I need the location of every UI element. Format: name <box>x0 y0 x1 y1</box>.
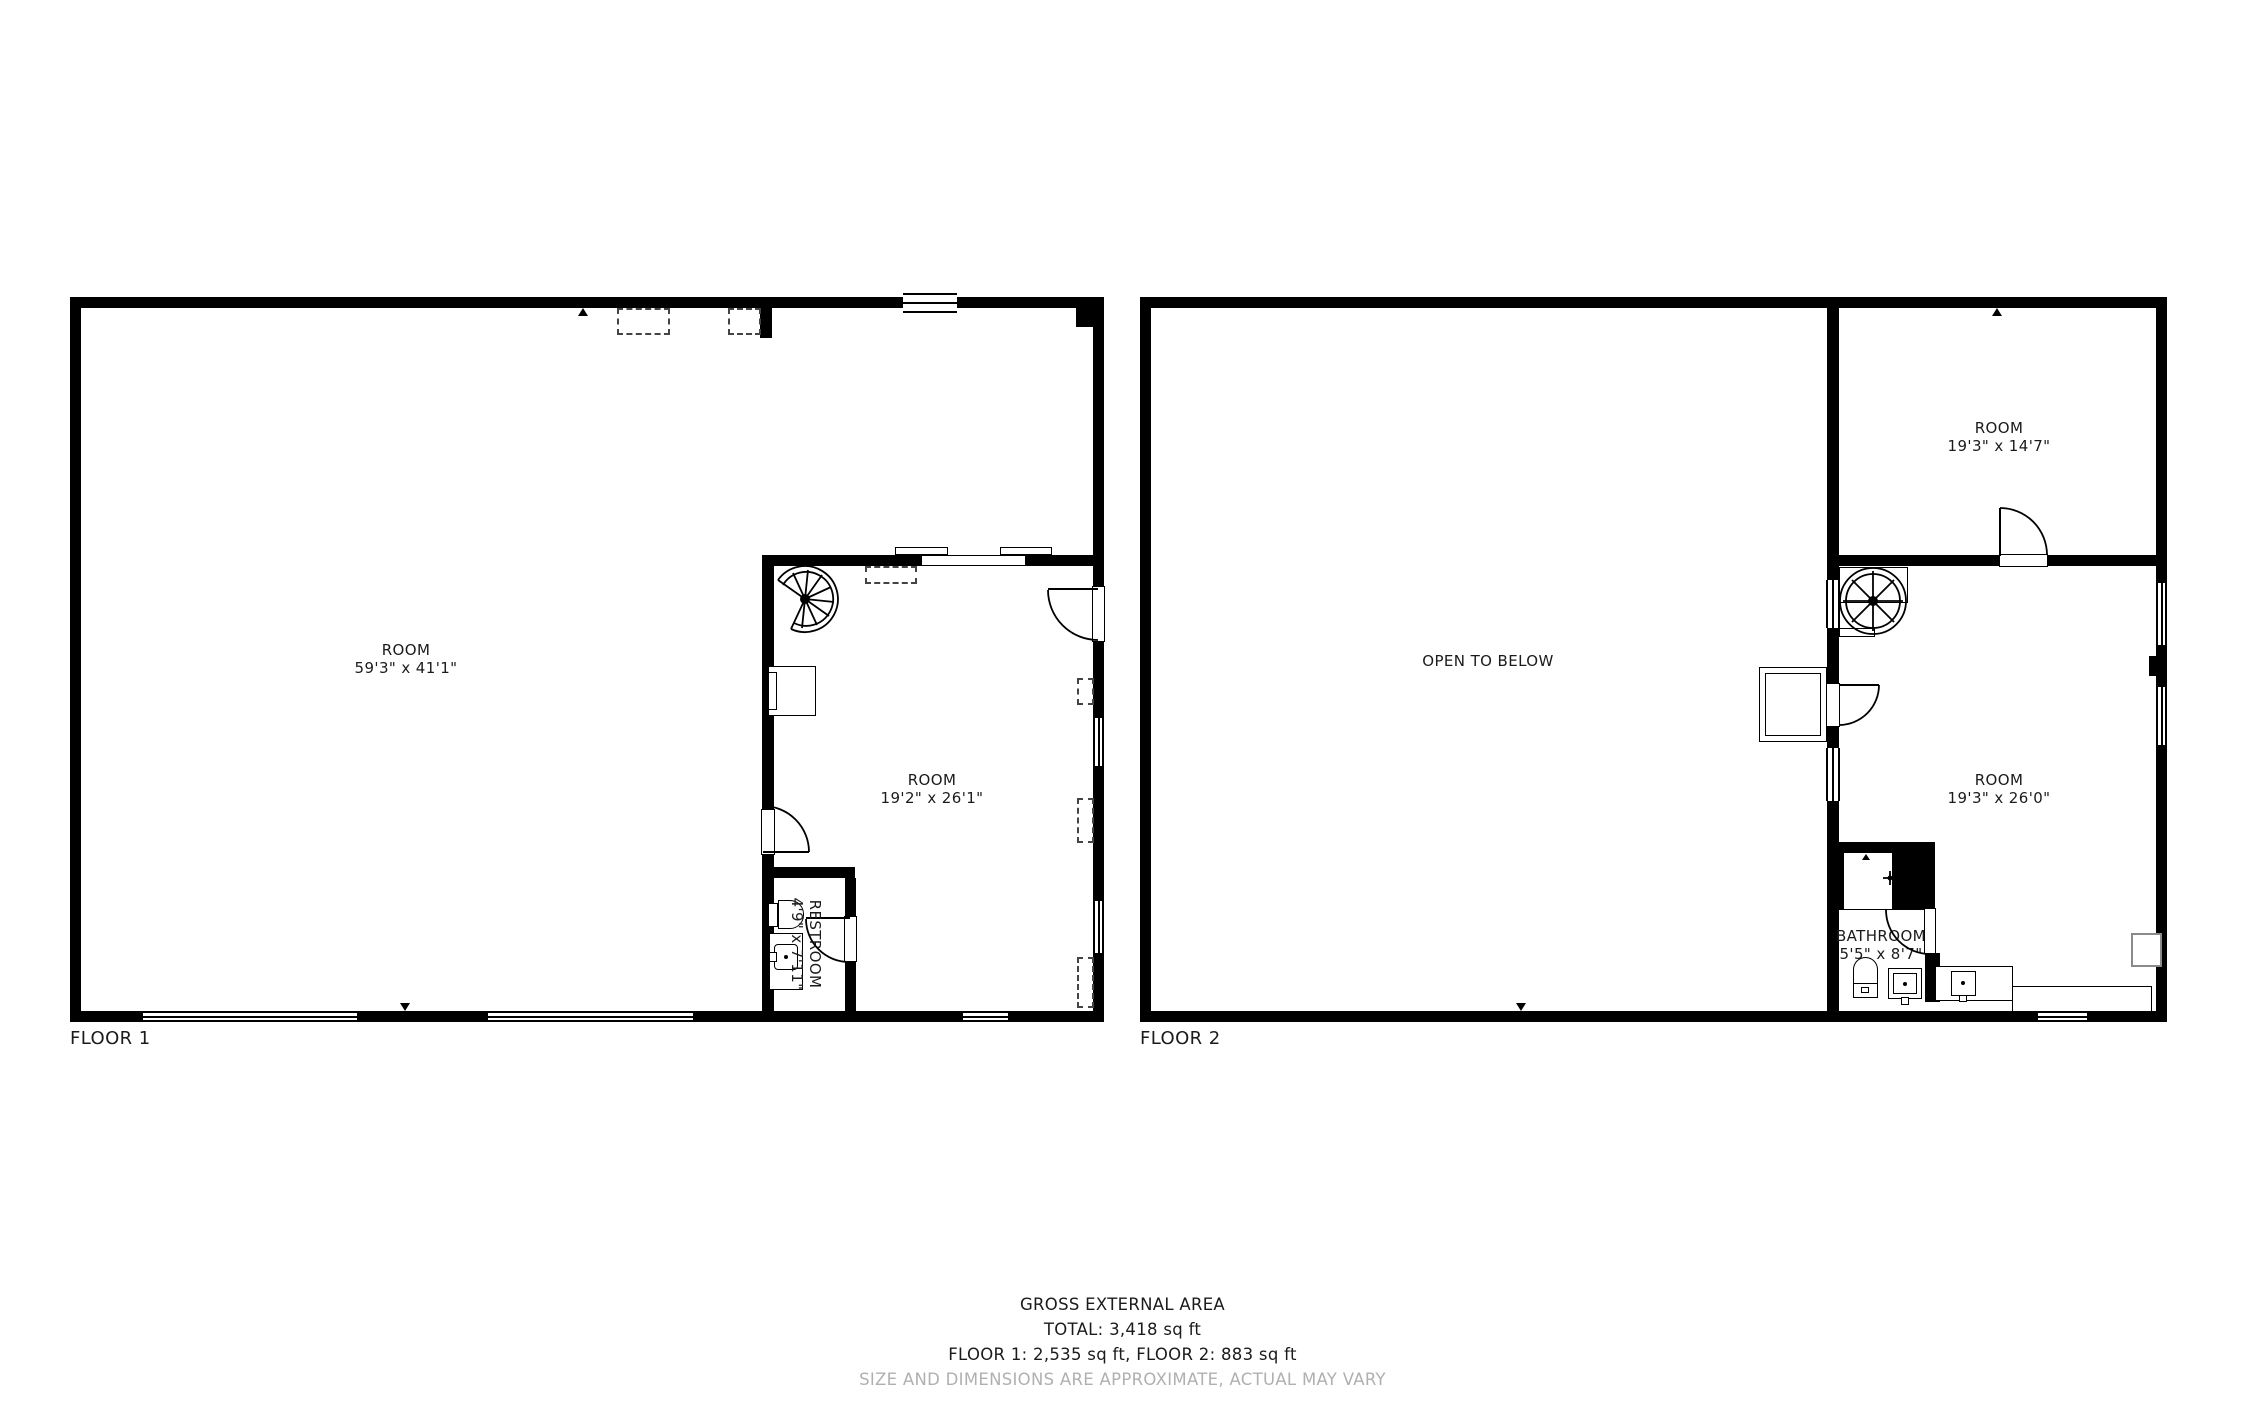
faucet-icon <box>1901 997 1909 1005</box>
room-label: ROOM 19'3" x 26'0" <box>1948 771 2051 807</box>
dashed-outline <box>1077 957 1094 1008</box>
stair-enclosure <box>1839 567 1908 603</box>
door-opening <box>1092 586 1105 642</box>
floor1-exterior-walls <box>70 297 1104 1022</box>
restroom-wall <box>845 962 856 1011</box>
window <box>1093 718 1104 766</box>
area-summary-total: TOTAL: 3,418 sq ft <box>0 1317 2245 1342</box>
counter <box>2012 986 2152 1012</box>
door-leaf <box>1048 588 1098 590</box>
area-summary: GROSS EXTERNAL AREA TOTAL: 3,418 sq ft F… <box>0 1292 2245 1392</box>
window <box>1826 580 1840 628</box>
dashed-outline <box>1077 798 1094 843</box>
direction-marker <box>578 308 588 316</box>
bathroom-label: BATHROOM 5'5" x 8'7" <box>1836 927 1926 963</box>
window <box>903 293 957 313</box>
floor2-title: FLOOR 2 <box>1140 1028 1221 1049</box>
direction-marker <box>1862 854 1870 860</box>
dashed-outline <box>865 566 917 584</box>
drain-dot <box>1903 982 1907 986</box>
room-dims: 59'3" x 41'1" <box>355 659 458 677</box>
room-dims: 19'3" x 14'7" <box>1948 437 2051 455</box>
window <box>2038 1011 2087 1022</box>
cabinet-symbol <box>768 672 777 710</box>
wall-opening <box>922 555 1025 566</box>
interior-wall <box>1839 555 1999 566</box>
wall-notch <box>1076 308 1104 327</box>
floorplan-image: ROOM 59'3" x 41'1" ROOM 19'2" x 26'1" RE… <box>0 0 2245 1402</box>
door-opening <box>1999 554 2048 567</box>
room-name: ROOM <box>1948 419 2051 437</box>
door-opening <box>1826 683 1840 727</box>
interior-wall <box>1827 628 1839 685</box>
sliding-door-rail <box>895 547 948 555</box>
area-summary-floors: FLOOR 1: 2,535 sq ft, FLOOR 2: 883 sq ft <box>0 1342 2245 1367</box>
door-opening <box>761 809 775 855</box>
interior-wall <box>1827 801 1839 1011</box>
dashed-outline <box>1077 678 1094 705</box>
room-dims: 19'2" x 26'1" <box>881 789 984 807</box>
room-label: ROOM 19'3" x 14'7" <box>1948 419 2051 455</box>
landing-platform-inner <box>1765 673 1821 736</box>
direction-marker <box>795 869 803 875</box>
room-name: BATHROOM <box>1836 927 1926 945</box>
wall-pier <box>2149 656 2162 676</box>
room-label: ROOM 19'2" x 26'1" <box>881 771 984 807</box>
interior-wall <box>1827 308 1839 580</box>
room-name: ROOM <box>1948 771 2051 789</box>
door-leaf <box>763 851 809 853</box>
faucet-icon <box>1959 995 1967 1002</box>
window <box>488 1011 693 1022</box>
window <box>2156 687 2167 745</box>
open-to-below-text: OPEN TO BELOW <box>1422 652 1553 670</box>
window <box>143 1011 357 1022</box>
room-name: ROOM <box>355 641 458 659</box>
drain-dot <box>1961 981 1965 985</box>
window <box>963 1011 1008 1022</box>
room-dims: 19'3" x 26'0" <box>1948 789 2051 807</box>
dashed-outline <box>728 308 761 335</box>
toilet-tank <box>768 903 778 927</box>
interior-wall <box>1827 727 1839 748</box>
door-leaf <box>1999 508 2001 556</box>
direction-marker <box>1992 308 2002 316</box>
room-name: RESTROOM <box>806 898 824 991</box>
room-dims: 5'5" x 8'7" <box>1836 945 1926 963</box>
room-name: ROOM <box>881 771 984 789</box>
interior-wall <box>762 555 922 566</box>
wall-stub <box>760 308 772 338</box>
toilet-button <box>1861 987 1869 993</box>
open-to-below-label: OPEN TO BELOW <box>1422 652 1553 670</box>
closet-outline <box>2131 933 2162 967</box>
shower-stall <box>1843 852 1893 910</box>
area-summary-disclaimer: SIZE AND DIMENSIONS ARE APPROXIMATE, ACT… <box>0 1367 2245 1392</box>
floor2-exterior-walls <box>1140 297 2167 1022</box>
floor1-title: FLOOR 1 <box>70 1028 151 1049</box>
window <box>1826 748 1840 801</box>
restroom-wall <box>762 867 855 878</box>
window <box>1093 901 1104 953</box>
room-dims: 4'9" x 7'11" <box>788 898 806 991</box>
restroom-label: RESTROOM 4'9" x 7'11" <box>788 898 824 991</box>
faucet-icon <box>769 952 777 962</box>
restroom-wall <box>845 878 856 916</box>
direction-marker <box>1516 1003 1526 1011</box>
stair-step <box>1839 628 1875 637</box>
window <box>2156 583 2167 645</box>
area-summary-title: GROSS EXTERNAL AREA <box>0 1292 2245 1317</box>
interior-wall <box>2047 555 2156 566</box>
sliding-door-rail <box>1000 547 1052 555</box>
dashed-outline <box>617 308 670 335</box>
interior-wall <box>1025 555 1093 566</box>
room-label: ROOM 59'3" x 41'1" <box>355 641 458 677</box>
direction-marker <box>400 1003 410 1011</box>
door-opening <box>844 916 857 962</box>
door-leaf <box>1839 684 1879 686</box>
